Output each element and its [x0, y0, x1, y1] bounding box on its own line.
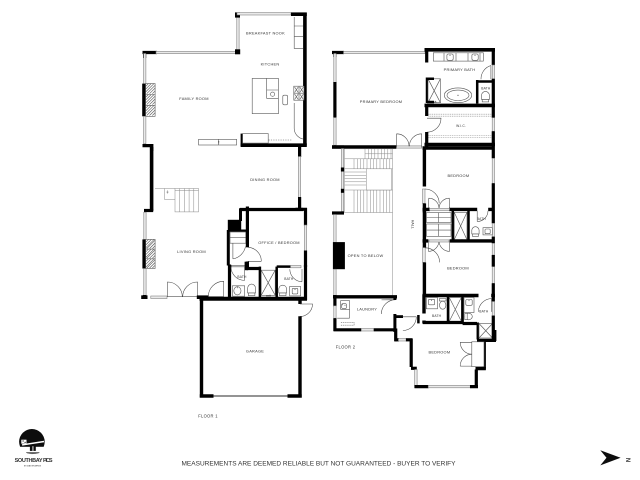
svg-text:BEDROOM: BEDROOM [447, 266, 469, 271]
svg-text:GARAGE: GARAGE [246, 349, 264, 354]
svg-text:BATH: BATH [477, 217, 487, 221]
svg-text:BATH: BATH [432, 314, 442, 318]
svg-text:BEDROOM: BEDROOM [447, 173, 469, 178]
svg-text:N: N [624, 458, 630, 462]
svg-text:FLOOR 2: FLOOR 2 [336, 344, 356, 349]
svg-text:PRIMARY BEDROOM: PRIMARY BEDROOM [360, 99, 403, 104]
svg-text:MEASUREMENTS ARE DEEMED RELIAB: MEASUREMENTS ARE DEEMED RELIABLE BUT NOT… [182, 460, 457, 467]
svg-text:HALL: HALL [410, 220, 414, 229]
svg-text:DINING ROOM: DINING ROOM [250, 177, 280, 182]
svg-text:FAMILY ROOM: FAMILY ROOM [179, 96, 208, 101]
svg-text:BATH: BATH [237, 275, 247, 279]
svg-text:KITCHEN: KITCHEN [261, 61, 280, 66]
svg-text:BATH: BATH [481, 87, 491, 91]
svg-text:BY CRAIG THOMPSON: BY CRAIG THOMPSON [24, 464, 42, 467]
svg-text:BEDROOM: BEDROOM [428, 350, 450, 355]
svg-text:PICS: PICS [43, 458, 53, 464]
svg-text:BREAKFAST NOOK: BREAKFAST NOOK [246, 31, 285, 36]
svg-text:BATH: BATH [479, 309, 489, 313]
svg-text:FLOOR 1: FLOOR 1 [198, 413, 218, 418]
svg-text:LIVING ROOM: LIVING ROOM [177, 249, 206, 254]
svg-text:LAUNDRY: LAUNDRY [357, 307, 377, 312]
svg-text:PRIMARY BATH: PRIMARY BATH [444, 67, 476, 72]
svg-text:W.I.C.: W.I.C. [456, 124, 466, 128]
svg-text:OFFICE / BEDROOM: OFFICE / BEDROOM [258, 240, 300, 245]
svg-text:SOUTHBAY: SOUTHBAY [15, 458, 43, 464]
svg-text:OPEN TO BELOW: OPEN TO BELOW [348, 253, 384, 258]
svg-text:BATH: BATH [284, 277, 294, 281]
